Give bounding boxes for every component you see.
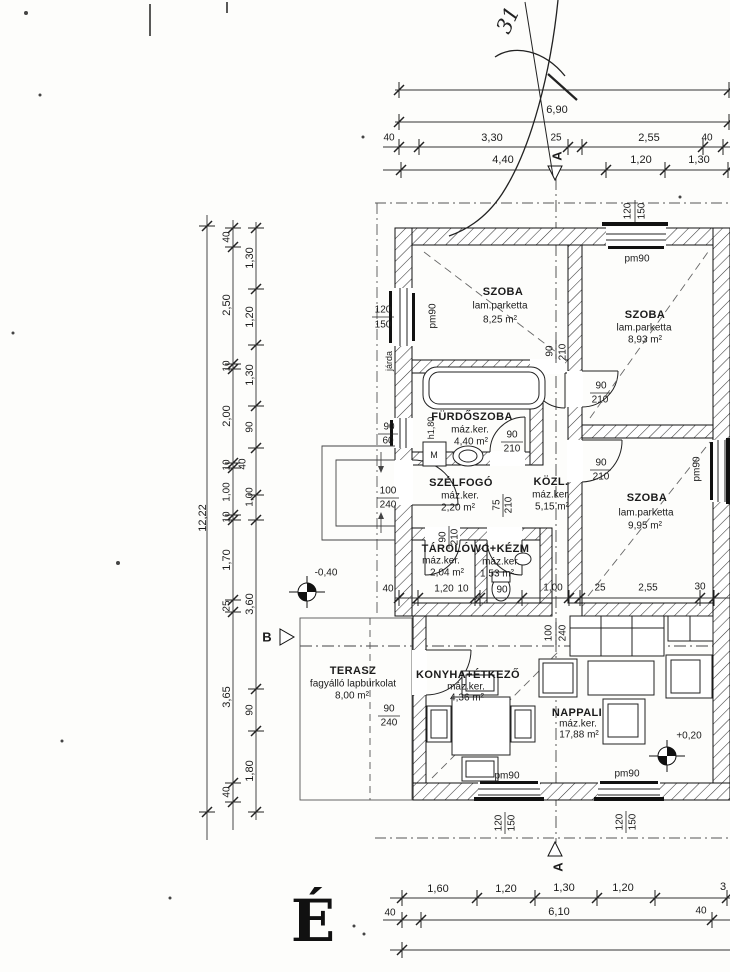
door-size: 90	[595, 381, 606, 392]
room-finish-konyha: máz.ker.	[447, 682, 485, 693]
dim-left: 2,00	[221, 405, 233, 426]
dim-left: 3,65	[221, 686, 233, 707]
dim-bottom: 1,20	[612, 882, 633, 894]
coffee-table	[588, 661, 654, 695]
dim-interior: 2,55	[638, 583, 657, 594]
door-size: 90	[506, 430, 517, 441]
window-size: 120	[615, 814, 626, 831]
dim-left: 25	[222, 600, 233, 611]
window-label-pm90: pm90	[494, 771, 519, 782]
window-size: 120	[623, 203, 634, 220]
dim-left: 2,50	[221, 294, 233, 315]
room-label-konyha: KONYHA+ÉTKEZŐ	[416, 669, 520, 681]
door-size: 75	[492, 499, 503, 510]
room-area-tarolo: 2,04 m²	[430, 568, 464, 579]
door-size: 210	[593, 472, 610, 483]
room-label-nappali: NAPPALI	[552, 707, 602, 719]
window-size: 120	[375, 305, 392, 316]
dim-left-inner: 1,30	[244, 364, 256, 385]
dim-top: 25	[550, 133, 561, 144]
level-marker-terrace	[289, 576, 325, 608]
dim-left: 10	[222, 459, 233, 470]
level-label-terrace: -0,40	[315, 568, 338, 579]
washing-machine-label: M	[430, 450, 438, 460]
section-letter-a-bottom: A	[551, 862, 566, 871]
dim-top: 1,20	[630, 154, 651, 166]
dim-top: 1,30	[688, 154, 709, 166]
dim-bottom: 6,10	[548, 906, 569, 918]
room-area-szelfogo: 2,20 m²	[441, 503, 475, 514]
sofa	[570, 616, 664, 656]
dim-interior: 40	[382, 584, 393, 595]
window-size-small: 60	[382, 436, 393, 447]
dim-interior: 90	[496, 585, 507, 596]
section-letter-b: B	[262, 630, 271, 645]
room-finish-tarolo: máz.ker.	[422, 556, 460, 567]
door-size: 210	[558, 344, 569, 361]
dim-top: 3,30	[481, 132, 502, 144]
door-size-entry: 100	[380, 486, 397, 497]
room-area-kozl: 5,15 m²	[535, 502, 569, 513]
dim-left: 10	[222, 360, 233, 371]
door-size-terrace: 90	[383, 704, 394, 715]
section-letter-a-top: A	[550, 151, 565, 160]
room-label-kozl: KÖZL.	[534, 476, 569, 488]
room-area-furdoszoba: 4,40 m²	[454, 437, 488, 448]
door-size: 90	[545, 345, 556, 356]
passage-size: 240	[558, 625, 569, 642]
floor-plan-sheet: SZOBA lam.parketta 8,25 m² SZOBA lam.par…	[0, 0, 730, 972]
room-finish-szoba2: lam.parketta	[616, 323, 671, 334]
room-label-wc: WC+KÉZM	[471, 543, 530, 555]
door-size: 90	[595, 458, 606, 469]
room-finish-terasz: fagyálló lapburkolat	[310, 679, 396, 690]
room-label-szoba3: SZOBA	[627, 492, 668, 504]
dim-left: 40	[222, 231, 233, 242]
dim-bottom: 1,30	[553, 882, 574, 894]
dim-left-inner: 90	[245, 421, 256, 432]
window-label-pm90: pm90	[692, 456, 703, 481]
dim-left: 1,70	[221, 549, 233, 570]
room-finish-kozl: máz.ker.	[532, 490, 570, 501]
dim-left-inner: 90	[245, 704, 256, 715]
annotation-tile-height: h1,80	[426, 417, 436, 440]
window-size: 150	[507, 815, 518, 832]
window-label-pm90: pm90	[624, 254, 649, 265]
dim-left-inner: 1,20	[244, 306, 256, 327]
terrace-outline	[300, 618, 412, 800]
room-label-tarolo: TÁROLÓ	[422, 543, 471, 555]
dim-left: 1,00	[222, 482, 233, 501]
level-label-floor: +0,20	[676, 731, 701, 742]
room-label-szoba1: SZOBA	[483, 286, 524, 298]
dim-left-stray: 40	[238, 458, 249, 469]
door-size: 210	[450, 529, 461, 546]
dim-interior: 10	[457, 584, 468, 595]
dim-left: 10	[222, 511, 233, 522]
room-area-konyha: 4,36 m²	[450, 693, 484, 704]
room-finish-wc: máz.ker.	[482, 557, 520, 568]
window-label-pm90: pm90	[428, 303, 439, 328]
room-area-szoba1: 8,25 m²	[483, 315, 517, 326]
room-area-wc: 1,53 m²	[480, 569, 514, 580]
dim-left-inner: 1,80	[244, 760, 256, 781]
door-size: 210	[592, 395, 609, 406]
dim-left: 40	[222, 786, 233, 797]
door-size-entry: 240	[380, 500, 397, 511]
room-area-nappali: 17,88 m²	[559, 730, 598, 741]
door-size: 210	[504, 497, 515, 514]
dim-bottom: 1,20	[495, 883, 516, 895]
roof-overhang-lines	[375, 203, 730, 838]
window-label-pm90: pm90	[614, 769, 639, 780]
room-label-szelfogo: SZÉLFOGÓ	[429, 477, 493, 489]
room-finish-szelfogo: máz.ker.	[441, 491, 479, 502]
room-label-furdoszoba: FÜRDŐSZOBA	[431, 411, 513, 423]
dim-interior: 1,00	[543, 583, 562, 594]
window-size-small: 90	[383, 422, 394, 433]
room-finish-nappali: máz.ker.	[559, 719, 597, 730]
dim-top: 40	[383, 133, 394, 144]
room-finish-furdoszoba: máz.ker.	[451, 425, 489, 436]
window-size: 150	[628, 814, 639, 831]
north-arrow-letter: É	[291, 887, 335, 955]
dim-interior: 30	[694, 582, 705, 593]
dim-left-inner: 3,60	[244, 593, 256, 614]
room-label-terasz: TERASZ	[330, 665, 376, 677]
dim-left-inner: 1,30	[244, 247, 256, 268]
dim-top: 4,40	[492, 154, 513, 166]
dim-bottom: 3	[720, 881, 726, 893]
dim-bottom: 40	[384, 908, 395, 919]
room-finish-szoba1: lam.parketta	[472, 301, 527, 312]
room-label-szoba2: SZOBA	[625, 309, 666, 321]
passage-size: 100	[544, 625, 555, 642]
dim-bottom: 1,60	[427, 883, 448, 895]
dim-interior: 25	[594, 583, 605, 594]
dim-left-total: 12,22	[197, 504, 209, 532]
window-size: 120	[494, 815, 505, 832]
dim-top: 2,55	[638, 132, 659, 144]
room-finish-szoba3: lam.parketta	[618, 508, 673, 519]
room-area-terasz: 8,00 m²	[335, 691, 369, 702]
annotation-jarda: járda	[384, 351, 394, 371]
door-size: 90	[438, 531, 449, 542]
dim-interior: 1,20	[434, 584, 453, 595]
dim-top: 40	[701, 133, 712, 144]
door-size-terrace: 240	[381, 718, 398, 729]
dim-left-inner: 1,00	[245, 487, 256, 506]
window-size: 150	[637, 203, 648, 220]
room-area-szoba3: 9,95 m²	[628, 521, 662, 532]
dining-table	[452, 697, 510, 755]
room-area-szoba2: 8,93 m²	[628, 335, 662, 346]
level-marker-floor	[649, 740, 685, 772]
dim-bottom: 40	[695, 906, 706, 917]
window-size: 150	[375, 320, 392, 331]
door-size: 210	[504, 444, 521, 455]
dim-top-total: 6,90	[546, 104, 567, 116]
